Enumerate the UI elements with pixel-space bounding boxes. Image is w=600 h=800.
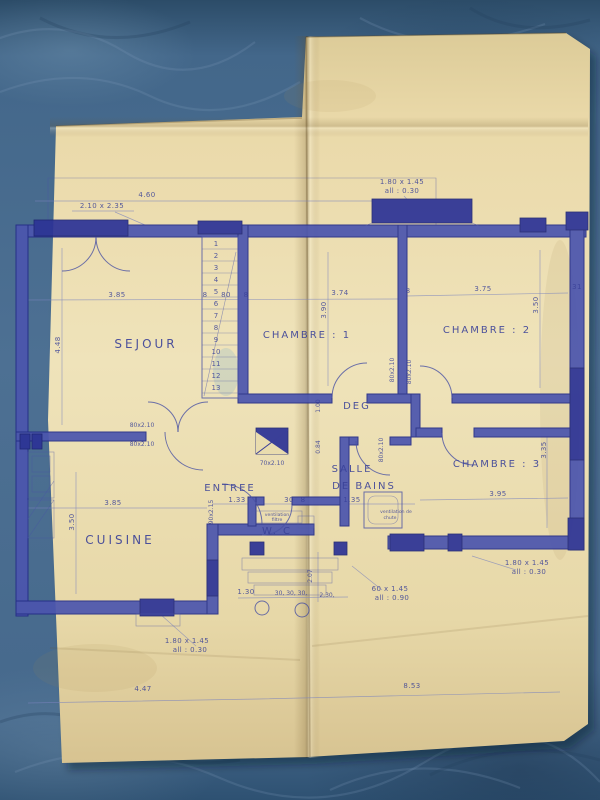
dim-cuisine-height: 3.50 bbox=[68, 513, 76, 530]
window-small-sill: all : 0.90 bbox=[375, 594, 410, 602]
dim-bay-size: 2.10 x 2.35 bbox=[80, 202, 124, 210]
kitchen-counter bbox=[28, 452, 54, 538]
room-label-sejour: SEJOUR bbox=[114, 337, 177, 351]
room-label-deg: DEG bbox=[343, 401, 371, 412]
dim-wall-8c: 8 bbox=[406, 287, 411, 295]
dim-wall-31: 31 bbox=[572, 283, 582, 291]
dim-cuisine-width: 3.85 bbox=[104, 499, 121, 507]
door-80-label-b: 80x2.10 bbox=[130, 441, 155, 448]
room-label-wc: W. C bbox=[262, 526, 292, 537]
dim-wall-8d: 8 bbox=[301, 496, 306, 504]
room-label-chambre1: CHAMBRE : 1 bbox=[263, 330, 351, 341]
door-80-label-e: 80x2.10 bbox=[378, 438, 385, 463]
dim-total-left: 4.47 bbox=[134, 685, 151, 693]
room-label-de-bains: DE BAINS bbox=[332, 481, 396, 492]
window-small-size: 60 x 1.45 bbox=[372, 585, 409, 593]
door-80-label-d: 80x2.10 bbox=[406, 360, 413, 385]
dim-porch-height: 2.07 bbox=[307, 569, 314, 583]
room-label-cuisine: CUISINE bbox=[85, 533, 154, 547]
note-vent-chute-2: chute bbox=[384, 515, 397, 521]
photo-of-blueprint: 1 2 3 4 5 6 7 8 9 10 11 12 13 bbox=[0, 0, 600, 800]
room-label-chambre3: CHAMBRE : 3 bbox=[453, 459, 541, 470]
dim-chain-a: 1.30 bbox=[237, 588, 254, 596]
stair-step-4: 4 bbox=[214, 276, 219, 284]
note-vent-filter-2: filtre bbox=[272, 517, 283, 523]
window-large-top-sill: all : 0.30 bbox=[385, 187, 420, 195]
dim-chambre3-width: 3.95 bbox=[489, 490, 506, 498]
stair-step-8: 8 bbox=[214, 324, 218, 332]
dim-deg-b: 0.84 bbox=[315, 440, 322, 454]
door-70-label: 70x2.10 bbox=[260, 460, 285, 467]
dim-entree-width: 1.33 bbox=[228, 496, 245, 504]
room-label-salle: SALLE bbox=[332, 464, 373, 475]
dim-duct-30: 30 bbox=[284, 496, 294, 504]
horizontal-fold bbox=[50, 117, 588, 137]
window-large-top-size: 1.80 x 1.45 bbox=[380, 178, 424, 186]
dim-chambre1-width: 3.74 bbox=[331, 289, 348, 297]
door-80-label-a: 80x2.10 bbox=[130, 422, 155, 429]
dim-bay-width: 4.60 bbox=[138, 191, 155, 199]
dim-chambre3-height: 3.35 bbox=[540, 441, 548, 458]
room-label-chambre2: CHAMBRE : 2 bbox=[443, 325, 531, 336]
dim-bains-width: 1.35 bbox=[343, 496, 360, 504]
window-large-bottom-size: 1.80 x 1.45 bbox=[165, 637, 209, 645]
note-vent-chute-1: ventilation de bbox=[380, 509, 412, 515]
stair-step-12: 12 bbox=[212, 372, 221, 380]
window-large-right-sill: all : 0.30 bbox=[512, 568, 547, 576]
dim-chain-b: 30, 30, 30, bbox=[275, 590, 308, 597]
stair-step-9: 9 bbox=[214, 336, 218, 344]
stair-step-3: 3 bbox=[214, 264, 218, 272]
dim-chambre2-height: 3.50 bbox=[532, 296, 540, 313]
dim-deg-a: 1.00 bbox=[315, 399, 322, 413]
dim-sejour-width: 3.85 bbox=[108, 291, 125, 299]
dim-wall-8a: 8 bbox=[203, 291, 208, 299]
stair-step-10: 10 bbox=[212, 348, 221, 356]
stair-step-1: 1 bbox=[214, 240, 218, 248]
door-80-label-c: 80x2.10 bbox=[389, 358, 396, 383]
stair-step-7: 7 bbox=[214, 312, 218, 320]
dim-chain-c: 2,30, bbox=[319, 592, 334, 599]
stair-step-13: 13 bbox=[212, 384, 221, 392]
room-label-entree: ENTREE bbox=[204, 483, 256, 494]
dim-wall-8b: 8 bbox=[244, 291, 249, 299]
chimney-flue bbox=[256, 428, 288, 454]
stair-step-5: 5 bbox=[214, 288, 218, 296]
window-large-bottom-sill: all : 0.30 bbox=[173, 646, 208, 654]
dim-chambre2-width: 3.75 bbox=[474, 285, 491, 293]
stair-step-11: 11 bbox=[212, 360, 221, 368]
dim-total-right: 8.53 bbox=[403, 682, 420, 690]
stair-step-6: 6 bbox=[214, 300, 219, 308]
dim-stair-width: 80 bbox=[221, 291, 231, 299]
stair-step-2: 2 bbox=[214, 252, 218, 260]
dim-sejour-height: 4.48 bbox=[54, 336, 62, 353]
window-large-right-size: 1.80 x 1.45 bbox=[505, 559, 549, 567]
dim-chambre1-height: 3.90 bbox=[320, 301, 328, 318]
door-90-label: 90x2.15 bbox=[208, 500, 215, 525]
